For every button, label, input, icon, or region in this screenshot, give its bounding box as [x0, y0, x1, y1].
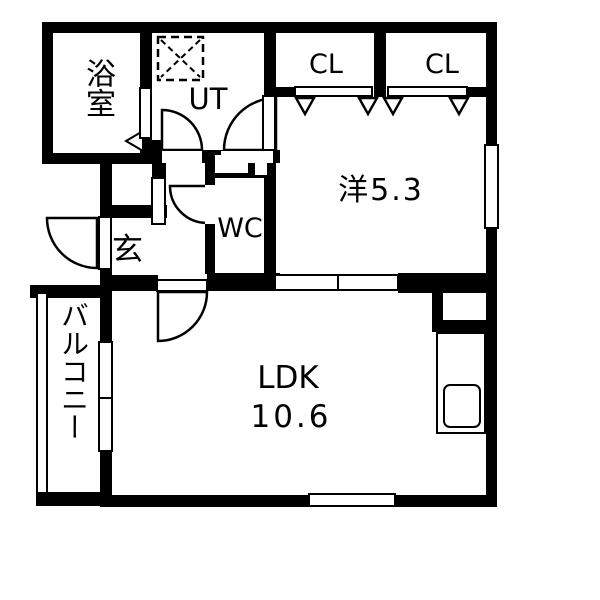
- utility-label: UT: [183, 82, 233, 116]
- balcony-railing: [36, 292, 48, 494]
- wall-closet-divider: [374, 22, 386, 97]
- wall-closet-stub-right: [468, 87, 486, 97]
- window-bottom: [308, 493, 396, 507]
- ldk-door-arc: [158, 292, 207, 341]
- closet-door-mark-icon: [450, 98, 468, 114]
- wall-kitchen-nook-bottom: [440, 320, 486, 332]
- toilet-door-arc: [170, 186, 207, 223]
- front-door-arc: [47, 218, 97, 268]
- closet-right-track: [387, 86, 468, 97]
- wall-column-upper: [264, 33, 276, 97]
- kitchen-nook: [443, 293, 486, 320]
- western-room-label: 洋5.3: [321, 165, 441, 209]
- wall-balcony-bottom: [36, 492, 106, 506]
- closet-left-track: [294, 86, 373, 97]
- ldk-label: LDK: [238, 360, 338, 396]
- closet-door-mark-icon: [384, 98, 402, 114]
- ldk-door-leaf: [156, 279, 208, 292]
- bath-door-leaf: [139, 87, 152, 139]
- hall-door-leaf: [151, 177, 166, 225]
- wall-top: [42, 22, 497, 33]
- pipe-space: [215, 155, 248, 173]
- toilet-label: WC: [210, 213, 270, 244]
- closet-door-mark-icon: [359, 98, 377, 114]
- window-balcony-lower: [98, 397, 113, 452]
- sliding-door-western-ldk: [274, 274, 399, 291]
- window-western-room: [484, 144, 499, 229]
- floorplan: 浴室 UT CL CL 洋5.3 玄 WC LDK 10.6 バルコニー: [0, 0, 600, 600]
- wall-right: [486, 22, 497, 507]
- closet-right-label: CL: [412, 49, 472, 80]
- closet-left-label: CL: [296, 49, 356, 80]
- closet-door-mark-icon: [296, 98, 314, 114]
- sliding-door-divider: [337, 276, 339, 289]
- wall-wc-bottom: [207, 273, 280, 291]
- wall-bottom: [100, 495, 497, 507]
- utility-door-arc: [162, 110, 202, 150]
- western-room-door-leaf: [262, 95, 276, 151]
- ldk-size-label: 10.6: [241, 399, 341, 435]
- balcony-label: バルコニー: [58, 301, 88, 441]
- kitchen-sink: [443, 384, 481, 428]
- wall-left-upper: [42, 22, 53, 164]
- window-balcony-upper: [98, 341, 113, 399]
- washer-space-icon: [158, 37, 203, 80]
- front-door-leaf: [98, 216, 112, 270]
- bathroom-label: 浴室: [81, 58, 113, 118]
- wall-kitchen-top: [398, 273, 486, 293]
- utility-door-opening: [162, 151, 202, 163]
- entrance-label: 玄: [112, 224, 143, 269]
- pipe-space-small: [255, 162, 267, 175]
